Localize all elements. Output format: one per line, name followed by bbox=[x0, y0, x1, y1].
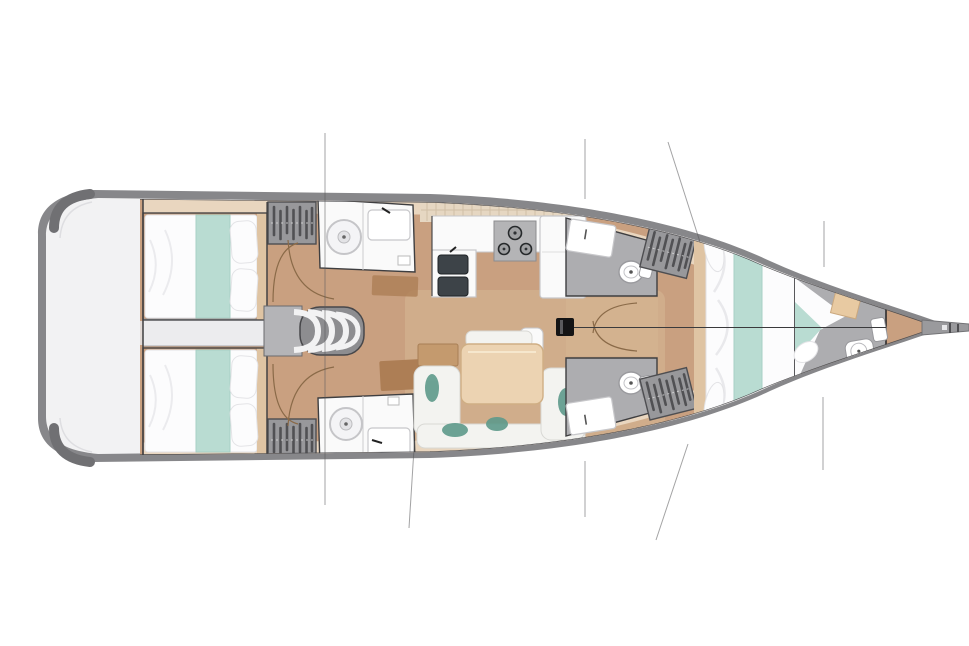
sink-unit bbox=[566, 396, 616, 435]
berth-side-shelf bbox=[257, 348, 267, 455]
companionway-stairs bbox=[264, 306, 364, 356]
aft-head-port bbox=[318, 199, 415, 272]
berth-runner bbox=[196, 350, 230, 452]
interior bbox=[100, 195, 940, 467]
wardrobe-aft-port bbox=[268, 202, 316, 244]
aft-cabin-starboard bbox=[143, 348, 267, 455]
yacht-floor-plan-canvas: Sailing yacht interior layout plan — top… bbox=[0, 0, 969, 646]
berth-side-shelf bbox=[257, 213, 267, 320]
shroud-line bbox=[656, 444, 688, 540]
locker-detail bbox=[398, 256, 410, 265]
bowsprit-notch bbox=[942, 325, 947, 330]
sink-icon bbox=[368, 210, 410, 240]
chart-table-port bbox=[372, 275, 419, 297]
toilet-drain bbox=[629, 381, 633, 385]
drain-dot bbox=[342, 235, 346, 239]
forepeak-head bbox=[790, 268, 888, 398]
sink-unit bbox=[566, 219, 616, 258]
sink-basin-icon bbox=[438, 255, 468, 274]
mast bbox=[556, 318, 574, 336]
aft-cabin-port bbox=[143, 213, 267, 320]
toilet-drain bbox=[629, 270, 633, 274]
locker-detail bbox=[388, 397, 399, 405]
sink-basin-icon bbox=[438, 277, 468, 296]
drain-dot bbox=[344, 422, 348, 426]
berth-runner bbox=[196, 215, 230, 318]
chart-table-top bbox=[418, 344, 458, 366]
yacht-floor-plan: Sailing yacht interior layout plan — top… bbox=[0, 0, 969, 646]
corridor-floor bbox=[143, 319, 267, 346]
bowsprit bbox=[922, 320, 969, 335]
